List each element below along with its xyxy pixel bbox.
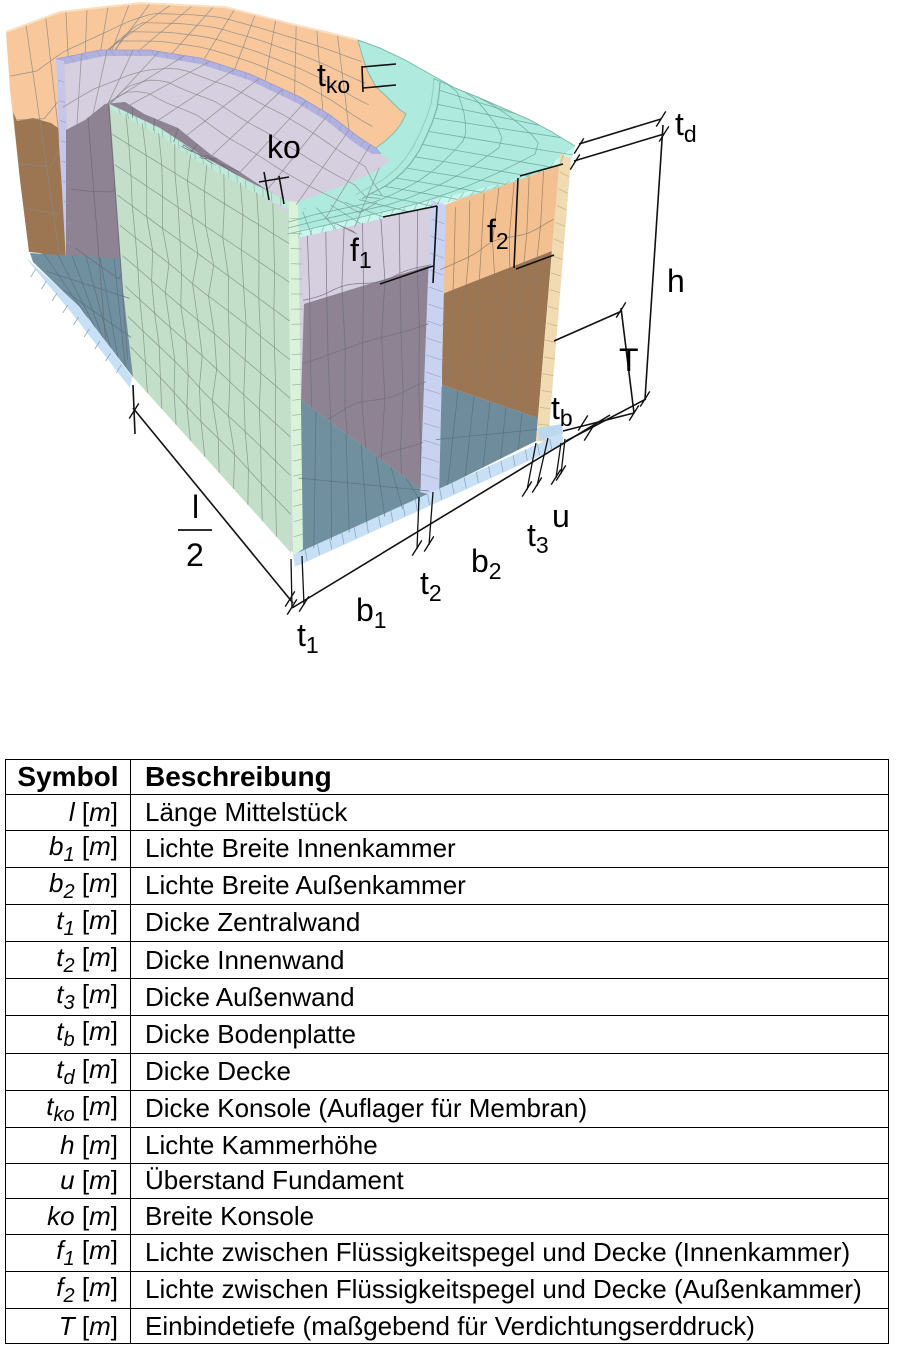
svg-text:T: T [619, 342, 639, 378]
svg-text:l: l [192, 489, 199, 525]
svg-text:t3: t3 [527, 517, 549, 558]
svg-text:td: td [675, 106, 697, 147]
svg-text:h: h [667, 263, 685, 299]
svg-text:t2: t2 [420, 565, 442, 606]
svg-text:b1: b1 [356, 592, 387, 633]
svg-text:t1: t1 [297, 617, 319, 658]
svg-text:tb: tb [551, 390, 573, 431]
svg-text:u: u [552, 498, 570, 534]
svg-text:ko: ko [267, 129, 301, 165]
svg-text:b2: b2 [471, 543, 502, 584]
svg-text:2: 2 [186, 537, 204, 573]
